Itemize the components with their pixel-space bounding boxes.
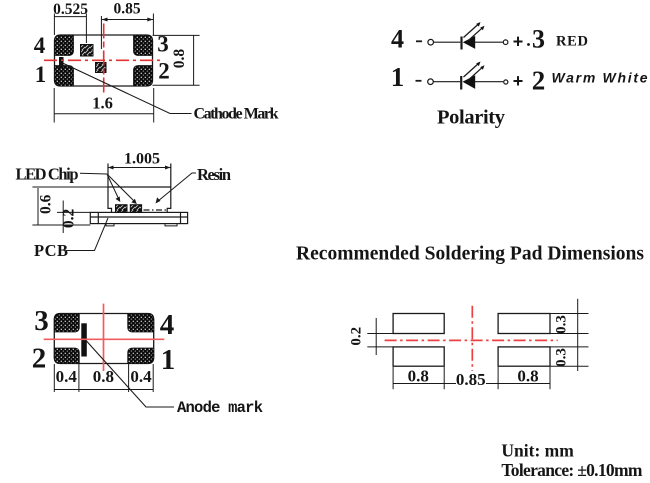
svg-text:2: 2	[158, 59, 170, 84]
svg-text:1: 1	[161, 344, 176, 376]
svg-text:0.85: 0.85	[113, 1, 140, 18]
svg-text:Tolerance: ±0.10mm: Tolerance: ±0.10mm	[501, 460, 642, 480]
svg-text:Anode mark: Anode mark	[177, 399, 263, 417]
svg-text:3: 3	[34, 305, 49, 337]
svg-text:+: +	[513, 71, 524, 91]
svg-text:4: 4	[34, 33, 46, 58]
svg-text:0.8: 0.8	[93, 367, 114, 386]
svg-text:0.8: 0.8	[171, 49, 188, 69]
svg-text:4: 4	[391, 25, 404, 54]
svg-text:0.525: 0.525	[53, 1, 88, 18]
svg-text:3: 3	[532, 25, 545, 54]
svg-text:Polarity: Polarity	[437, 107, 506, 129]
svg-text:1: 1	[35, 62, 47, 87]
svg-text:PCB: PCB	[34, 241, 68, 260]
svg-text:3: 3	[157, 32, 169, 57]
svg-text:0.8: 0.8	[517, 367, 538, 386]
svg-text:Recommended Soldering Pad Dime: Recommended Soldering Pad Dimensions	[296, 244, 644, 265]
svg-text:Unit: mm: Unit: mm	[501, 441, 574, 461]
svg-text:0.4: 0.4	[56, 367, 78, 386]
svg-text:RED: RED	[556, 33, 588, 49]
svg-text:Resin: Resin	[197, 165, 231, 184]
svg-text:+: +	[513, 32, 524, 52]
svg-text:0.4: 0.4	[130, 367, 152, 386]
svg-text:0.8: 0.8	[408, 367, 429, 386]
svg-text:1.005: 1.005	[124, 151, 160, 168]
svg-text:0.3: 0.3	[554, 315, 570, 334]
svg-text:2: 2	[532, 65, 546, 95]
svg-text:0.2: 0.2	[349, 327, 365, 346]
svg-text:0.3: 0.3	[554, 348, 570, 367]
svg-text:1: 1	[391, 62, 405, 92]
svg-text:Warm White: Warm White	[552, 70, 648, 86]
svg-text:0.6: 0.6	[38, 194, 55, 214]
svg-text:LED Chip: LED Chip	[16, 165, 79, 184]
svg-text:2: 2	[32, 343, 47, 375]
svg-text:Cathode Mark: Cathode Mark	[194, 106, 279, 123]
svg-text:0.2: 0.2	[61, 208, 78, 228]
svg-text:4: 4	[160, 309, 175, 341]
svg-text:0.85: 0.85	[456, 370, 486, 389]
svg-text:1.6: 1.6	[92, 94, 113, 113]
